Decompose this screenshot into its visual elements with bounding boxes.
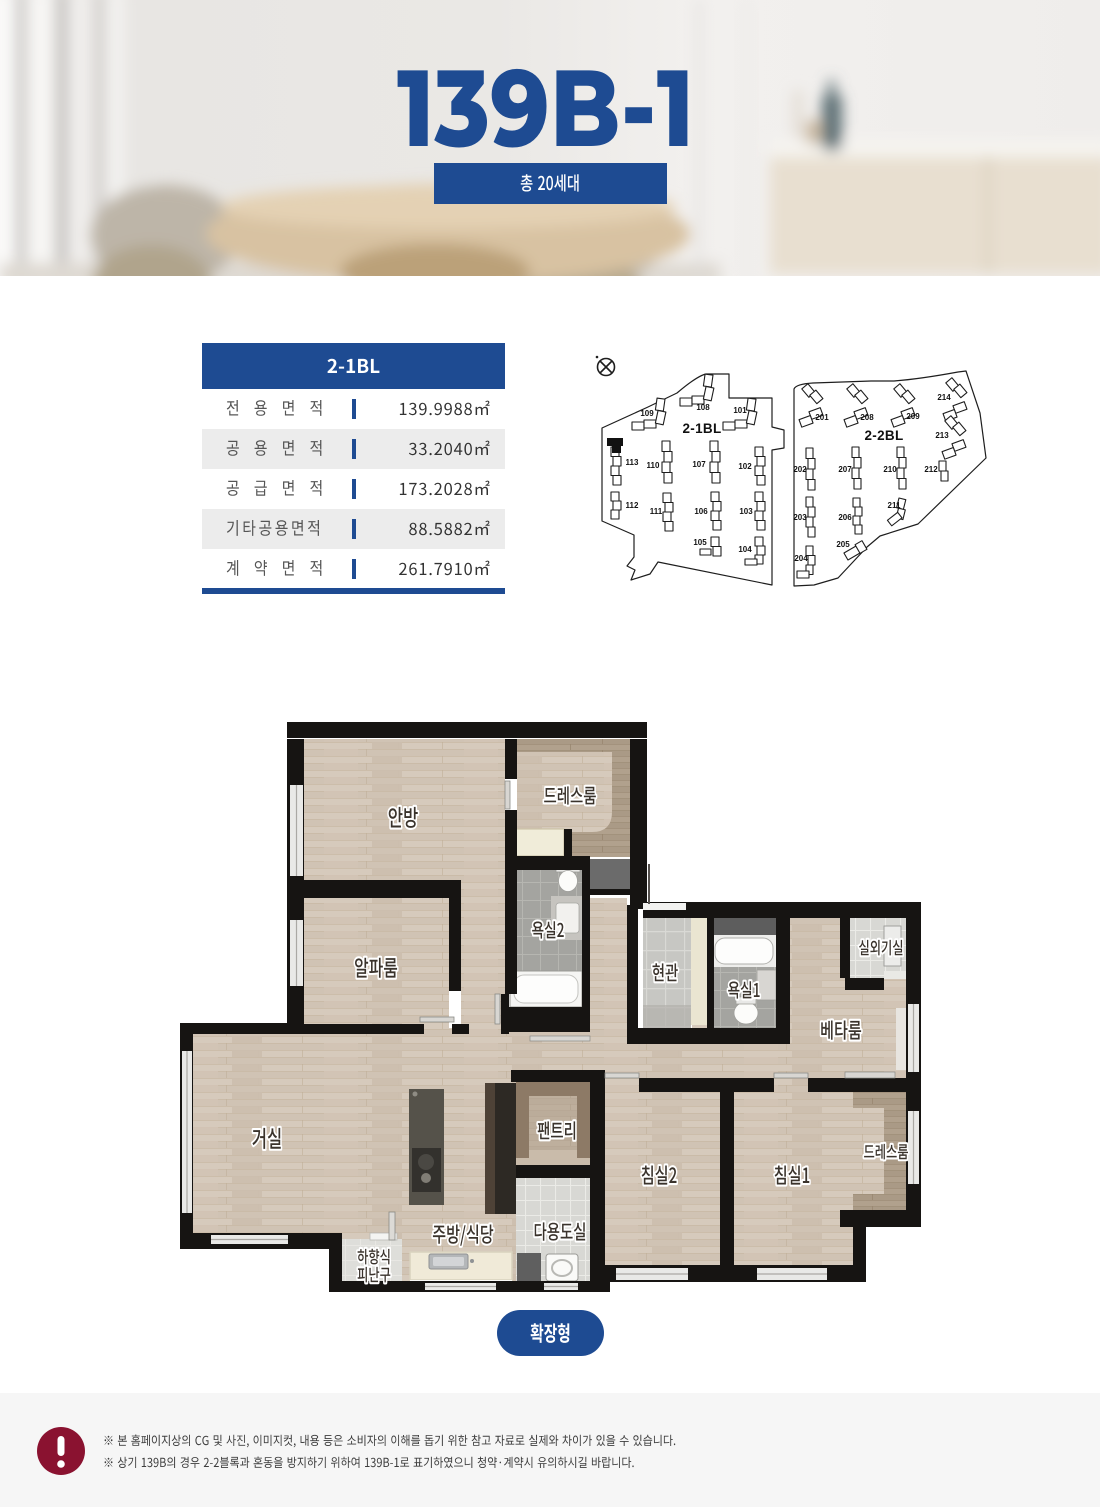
svg-text:214: 214	[937, 393, 951, 402]
svg-text:211: 211	[888, 501, 901, 510]
svg-text:107: 107	[692, 460, 706, 469]
svg-text:207: 207	[838, 465, 852, 474]
svg-text:213: 213	[935, 431, 949, 440]
svg-text:212: 212	[924, 465, 938, 474]
svg-text:106: 106	[694, 507, 708, 516]
svg-text:103: 103	[739, 507, 753, 516]
svg-text:110: 110	[647, 461, 660, 470]
svg-text:206: 206	[838, 513, 852, 522]
svg-text:205: 205	[836, 540, 850, 549]
svg-text:108: 108	[696, 403, 710, 412]
svg-text:202: 202	[793, 465, 807, 474]
svg-text:102: 102	[738, 462, 752, 471]
svg-text:101: 101	[733, 406, 747, 415]
svg-text:105: 105	[693, 538, 707, 547]
svg-text:208: 208	[860, 413, 874, 422]
svg-text:104: 104	[738, 545, 752, 554]
svg-text:113: 113	[626, 458, 639, 467]
svg-text:111: 111	[650, 507, 663, 516]
svg-text:112: 112	[626, 501, 639, 510]
svg-text:209: 209	[906, 412, 920, 421]
svg-text:203: 203	[793, 513, 807, 522]
svg-text:210: 210	[883, 465, 897, 474]
svg-text:204: 204	[794, 554, 808, 563]
svg-text:201: 201	[815, 413, 829, 422]
svg-text:2-1BL: 2-1BL	[682, 421, 721, 436]
svg-text:2-2BL: 2-2BL	[864, 428, 903, 443]
svg-text:109: 109	[640, 409, 654, 418]
